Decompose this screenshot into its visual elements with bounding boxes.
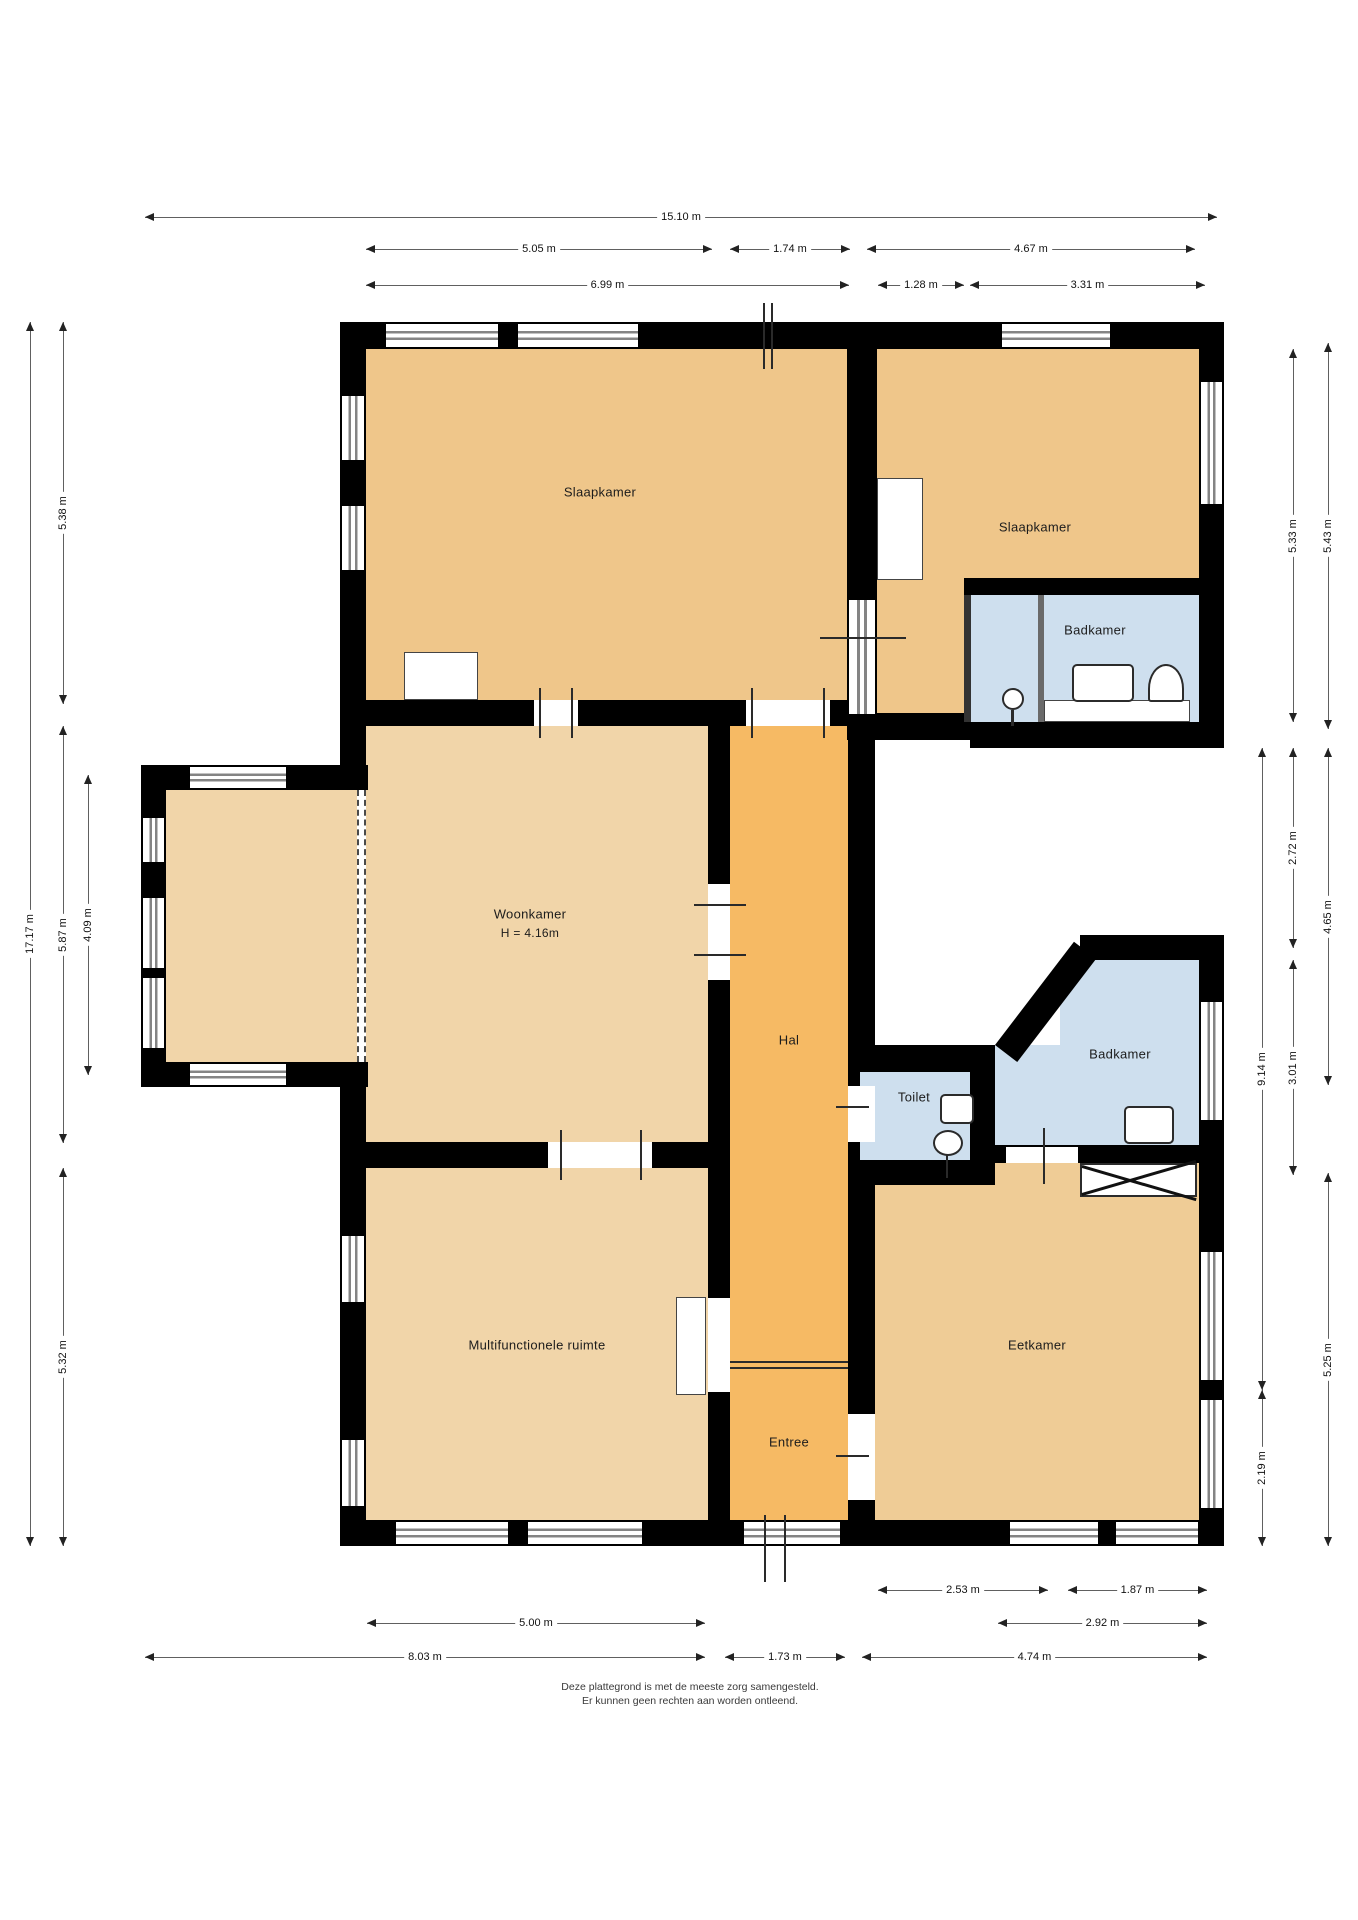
room-label: Hal — [779, 1033, 799, 1048]
door-swing-mark — [820, 637, 906, 639]
arrow-down-icon — [59, 695, 67, 704]
window — [516, 324, 640, 347]
arrow-left-icon — [367, 1619, 376, 1627]
dimension-horizontal: 2.92 m — [998, 1617, 1207, 1629]
window — [143, 896, 164, 970]
wall — [970, 722, 1224, 748]
dim-label: 5.38 m — [57, 492, 69, 534]
window — [526, 1522, 644, 1544]
dimension-horizontal: 5.05 m — [366, 243, 712, 255]
arrow-right-icon — [840, 281, 849, 289]
dimension-vertical: 5.32 m — [57, 1168, 69, 1546]
arrow-down-icon — [1324, 720, 1332, 729]
window — [143, 976, 164, 1050]
fixture-washbasin — [1124, 1106, 1174, 1144]
dim-label: 1.87 m — [1117, 1584, 1159, 1596]
arrow-down-icon — [1324, 1537, 1332, 1546]
door-opening — [1006, 1147, 1078, 1163]
dim-label: 15.10 m — [657, 211, 705, 223]
dimension-horizontal: 2.53 m — [878, 1584, 1048, 1596]
window — [342, 1438, 364, 1508]
arrow-left-icon — [862, 1653, 871, 1661]
dimension-vertical: 5.33 m — [1287, 349, 1299, 722]
room-label: Badkamer — [1064, 623, 1126, 638]
door-swing-mark — [751, 688, 753, 738]
window — [394, 1522, 510, 1544]
dim-label: 2.92 m — [1082, 1617, 1124, 1629]
arrow-left-icon — [998, 1619, 1007, 1627]
wall — [964, 578, 1199, 595]
dim-label: 17.17 m — [24, 910, 36, 958]
door-swing-mark — [560, 1130, 562, 1180]
window — [188, 1064, 288, 1085]
door-swing-mark — [771, 303, 773, 369]
dim-label: 5.05 m — [518, 243, 560, 255]
door-opening — [848, 1086, 875, 1142]
bay-opening-dashed-line — [357, 790, 359, 1062]
room-slaapkamer-right-arm — [877, 578, 964, 713]
door-swing-mark — [836, 1455, 869, 1457]
room-label: Eetkamer — [1008, 1338, 1066, 1353]
window — [1201, 1000, 1222, 1122]
dim-label: 2.53 m — [942, 1584, 984, 1596]
dim-label: 5.00 m — [515, 1617, 557, 1629]
dimension-horizontal: 4.74 m — [862, 1651, 1207, 1663]
room-label: Woonkamer — [494, 907, 567, 922]
window — [384, 324, 500, 347]
window — [849, 598, 875, 716]
arrow-up-icon — [59, 322, 67, 331]
dimension-horizontal: 4.67 m — [867, 243, 1195, 255]
room-label: Toilet — [898, 1090, 930, 1105]
dim-label: 5.33 m — [1287, 515, 1299, 557]
dimension-horizontal: 6.99 m — [366, 279, 849, 291]
door-swing-mark — [763, 303, 765, 369]
dim-label: 5.87 m — [57, 914, 69, 956]
arrow-right-icon — [1208, 213, 1217, 221]
arrow-down-icon — [84, 1066, 92, 1075]
door-swing-mark — [571, 688, 573, 738]
dim-label: 1.73 m — [764, 1651, 806, 1663]
dimension-vertical: 4.09 m — [82, 775, 94, 1075]
fixture-cabinet-crossed — [1080, 1163, 1197, 1197]
arrow-down-icon — [59, 1134, 67, 1143]
dimension-vertical: 9.14 m — [1256, 748, 1268, 1390]
dim-label: 5.43 m — [1322, 515, 1334, 557]
window — [1000, 324, 1112, 347]
door-swing-mark — [694, 904, 746, 906]
wall — [340, 1142, 730, 1168]
door-opening — [848, 1414, 875, 1500]
arrow-left-icon — [145, 213, 154, 221]
disclaimer-line2: Er kunnen geen rechten aan worden ontlee… — [561, 1694, 818, 1708]
door-opening — [548, 1142, 652, 1168]
arrow-down-icon — [1258, 1381, 1266, 1390]
dimension-vertical: 2.72 m — [1287, 748, 1299, 948]
arrow-left-icon — [725, 1653, 734, 1661]
arrow-right-icon — [696, 1653, 705, 1661]
fixture-hand-basin — [940, 1094, 974, 1124]
door-swing-mark — [694, 954, 746, 956]
window — [1201, 380, 1222, 506]
door-swing-mark — [836, 1106, 869, 1108]
dim-label: 4.65 m — [1322, 896, 1334, 938]
disclaimer-line1: Deze plattegrond is met de meeste zorg s… — [561, 1680, 818, 1694]
arrow-up-icon — [1289, 748, 1297, 757]
room-label: Slaapkamer — [564, 485, 636, 500]
window — [143, 816, 164, 864]
fixture-bath-counter — [1044, 700, 1190, 722]
floorplan-canvas: Deze plattegrond is met de meeste zorg s… — [0, 0, 1358, 1920]
dimension-vertical: 17.17 m — [24, 322, 36, 1546]
dim-label: 4.67 m — [1010, 243, 1052, 255]
disclaimer: Deze plattegrond is met de meeste zorg s… — [561, 1680, 818, 1708]
dimension-vertical: 5.87 m — [57, 726, 69, 1143]
dim-label: 4.74 m — [1014, 1651, 1056, 1663]
arrow-down-icon — [1289, 939, 1297, 948]
arrow-down-icon — [1289, 1166, 1297, 1175]
dimension-vertical: 2.19 m — [1256, 1390, 1268, 1546]
door-opening — [746, 700, 830, 726]
window — [188, 767, 288, 788]
arrow-right-icon — [703, 245, 712, 253]
door-swing-mark — [784, 1515, 786, 1582]
door-opening — [708, 884, 730, 980]
arrow-left-icon — [366, 281, 375, 289]
arrow-up-icon — [1289, 960, 1297, 969]
arrow-right-icon — [1196, 281, 1205, 289]
door-swing-mark — [730, 1361, 848, 1363]
arrow-down-icon — [1289, 713, 1297, 722]
wall — [848, 740, 875, 1072]
room-slaapkamer-left — [366, 349, 847, 700]
door-swing-mark — [823, 688, 825, 738]
arrow-right-icon — [1039, 1586, 1048, 1594]
dim-label: 2.72 m — [1287, 827, 1299, 869]
fixture-door-leaf — [877, 478, 923, 580]
room-label: H = 4.16m — [501, 926, 559, 940]
arrow-left-icon — [867, 245, 876, 253]
wall — [848, 1160, 995, 1185]
arrow-right-icon — [841, 245, 850, 253]
door-swing-mark — [946, 1154, 948, 1178]
arrow-up-icon — [1289, 349, 1297, 358]
arrow-left-icon — [1068, 1586, 1077, 1594]
dim-label: 5.32 m — [57, 1336, 69, 1378]
arrow-up-icon — [59, 1168, 67, 1177]
dimension-horizontal: 3.31 m — [970, 279, 1205, 291]
door-swing-mark — [640, 1130, 642, 1180]
dimension-horizontal: 15.10 m — [145, 211, 1217, 223]
arrow-up-icon — [1258, 748, 1266, 757]
dimension-horizontal: 5.00 m — [367, 1617, 705, 1629]
fixture-washbasin — [1072, 664, 1134, 702]
arrow-right-icon — [1198, 1586, 1207, 1594]
dim-label: 1.28 m — [900, 279, 942, 291]
window — [342, 394, 364, 462]
window — [342, 504, 364, 572]
arrow-right-icon — [696, 1619, 705, 1627]
dim-label: 3.01 m — [1287, 1047, 1299, 1089]
wall-thin — [964, 595, 971, 722]
dimension-horizontal: 1.87 m — [1068, 1584, 1207, 1596]
arrow-right-icon — [836, 1653, 845, 1661]
cross-line — [1082, 1165, 1197, 1201]
arrow-left-icon — [366, 245, 375, 253]
dimension-vertical: 3.01 m — [1287, 960, 1299, 1175]
dimension-horizontal: 1.73 m — [725, 1651, 845, 1663]
fixture-closet — [404, 652, 478, 700]
room-slaapkamer-right-main — [877, 349, 1199, 578]
dim-label: 3.31 m — [1067, 279, 1109, 291]
cross-line — [1081, 1159, 1196, 1195]
arrow-up-icon — [59, 726, 67, 735]
window — [342, 1234, 364, 1304]
dimension-horizontal: 8.03 m — [145, 1651, 705, 1663]
arrow-up-icon — [1258, 1390, 1266, 1399]
window — [742, 1522, 842, 1544]
dim-label: 8.03 m — [404, 1651, 446, 1663]
dimension-vertical: 5.43 m — [1322, 343, 1334, 729]
room-hal-entree — [730, 726, 848, 1520]
arrow-right-icon — [1186, 245, 1195, 253]
room-label: Entree — [769, 1435, 809, 1450]
arrow-left-icon — [730, 245, 739, 253]
window — [1114, 1522, 1200, 1544]
arrow-left-icon — [878, 281, 887, 289]
arrow-up-icon — [1324, 748, 1332, 757]
dim-label: 1.74 m — [769, 243, 811, 255]
window — [1201, 1250, 1222, 1382]
arrow-left-icon — [145, 1653, 154, 1661]
arrow-left-icon — [878, 1586, 887, 1594]
window — [1201, 1398, 1222, 1510]
door-swing-mark — [539, 688, 541, 738]
door-swing-mark — [764, 1515, 766, 1582]
arrow-down-icon — [26, 1537, 34, 1546]
dimension-horizontal: 1.74 m — [730, 243, 850, 255]
dimension-vertical: 4.65 m — [1322, 748, 1334, 1085]
room-erker-bay — [166, 790, 357, 1062]
room-label: Badkamer — [1089, 1047, 1151, 1062]
dim-label: 4.09 m — [82, 904, 94, 946]
wall — [1080, 935, 1199, 960]
door-opening — [708, 1298, 730, 1392]
arrow-right-icon — [1198, 1619, 1207, 1627]
arrow-up-icon — [84, 775, 92, 784]
window — [1008, 1522, 1100, 1544]
door-swing-mark — [1043, 1128, 1045, 1184]
arrow-right-icon — [1198, 1653, 1207, 1661]
arrow-down-icon — [59, 1537, 67, 1546]
dim-label: 9.14 m — [1256, 1048, 1268, 1090]
arrow-up-icon — [1324, 1173, 1332, 1182]
arrow-down-icon — [1324, 1076, 1332, 1085]
dimension-vertical: 5.38 m — [57, 322, 69, 704]
door-swing-mark — [1011, 710, 1014, 726]
bay-opening-dashed-line — [364, 790, 366, 1062]
room-label: Slaapkamer — [999, 520, 1071, 535]
dim-label: 5.25 m — [1322, 1339, 1334, 1381]
door-swing-mark — [730, 1367, 848, 1369]
wall — [847, 713, 970, 740]
dimension-vertical: 5.25 m — [1322, 1173, 1334, 1546]
arrow-left-icon — [970, 281, 979, 289]
dim-label: 2.19 m — [1256, 1447, 1268, 1489]
arrow-up-icon — [1324, 343, 1332, 352]
dimension-horizontal: 1.28 m — [878, 279, 964, 291]
dim-label: 6.99 m — [587, 279, 629, 291]
arrow-down-icon — [1258, 1537, 1266, 1546]
fixture-toilet-bowl — [933, 1130, 963, 1156]
fixture-toilet-bowl — [1002, 688, 1024, 710]
arrow-up-icon — [26, 322, 34, 331]
wall — [708, 726, 730, 1520]
room-label: Multifunctionele ruimte — [469, 1338, 606, 1353]
arrow-right-icon — [955, 281, 964, 289]
fixture-door-leaf — [676, 1297, 706, 1395]
